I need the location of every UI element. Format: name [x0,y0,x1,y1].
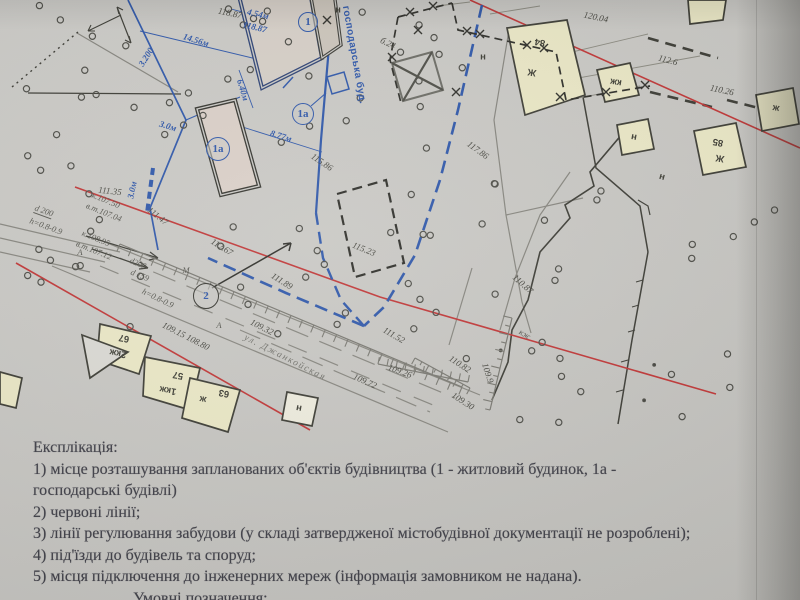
explication-title: Експлікація: [33,437,789,459]
legend-title: Умовні позначення: [133,588,789,600]
explication-item-2: 2) червоні лінії; [33,502,789,524]
road-lines [0,224,480,432]
plot-boundaries-gray [77,30,583,345]
site-plan-map: 118.87б.24120.04112.6110.26117.86115.861… [0,0,800,435]
survey-lines [12,7,181,94]
explication-item-5: 5) місця підключення до інженерних мереж… [33,566,789,588]
site-plan-drawing [0,0,800,435]
building-kzh [597,63,639,102]
building-top-partial [688,0,726,24]
explication-item-1: 1) місце розташування запланованих об'єк… [33,459,789,481]
building-85 [694,123,746,175]
building-n [617,119,654,155]
building-small-n [282,392,318,426]
explication-item-3: 3) лінії регулювання забудови (у складі … [33,523,789,545]
small-structure-1a [311,72,349,106]
top-annotations [437,2,798,118]
building-left-partial [0,372,22,408]
planned-building-1 [238,0,322,88]
explication-item-4: 4) під'їзди до будівель та споруд; [33,545,789,567]
road-arrows [86,236,158,269]
building-84 [507,20,585,115]
explication-item-1b: господарські будівлі) [33,480,789,502]
demolition-shed [392,52,443,101]
building-zh-edge [756,88,799,131]
existing-buildings [0,0,799,432]
explication-block: Експлікація: 1) місце розташування запла… [33,437,789,600]
scanned-plan-photo: 118.87б.24120.04112.6110.26117.86115.861… [0,0,800,600]
dashed-structure [337,180,404,277]
